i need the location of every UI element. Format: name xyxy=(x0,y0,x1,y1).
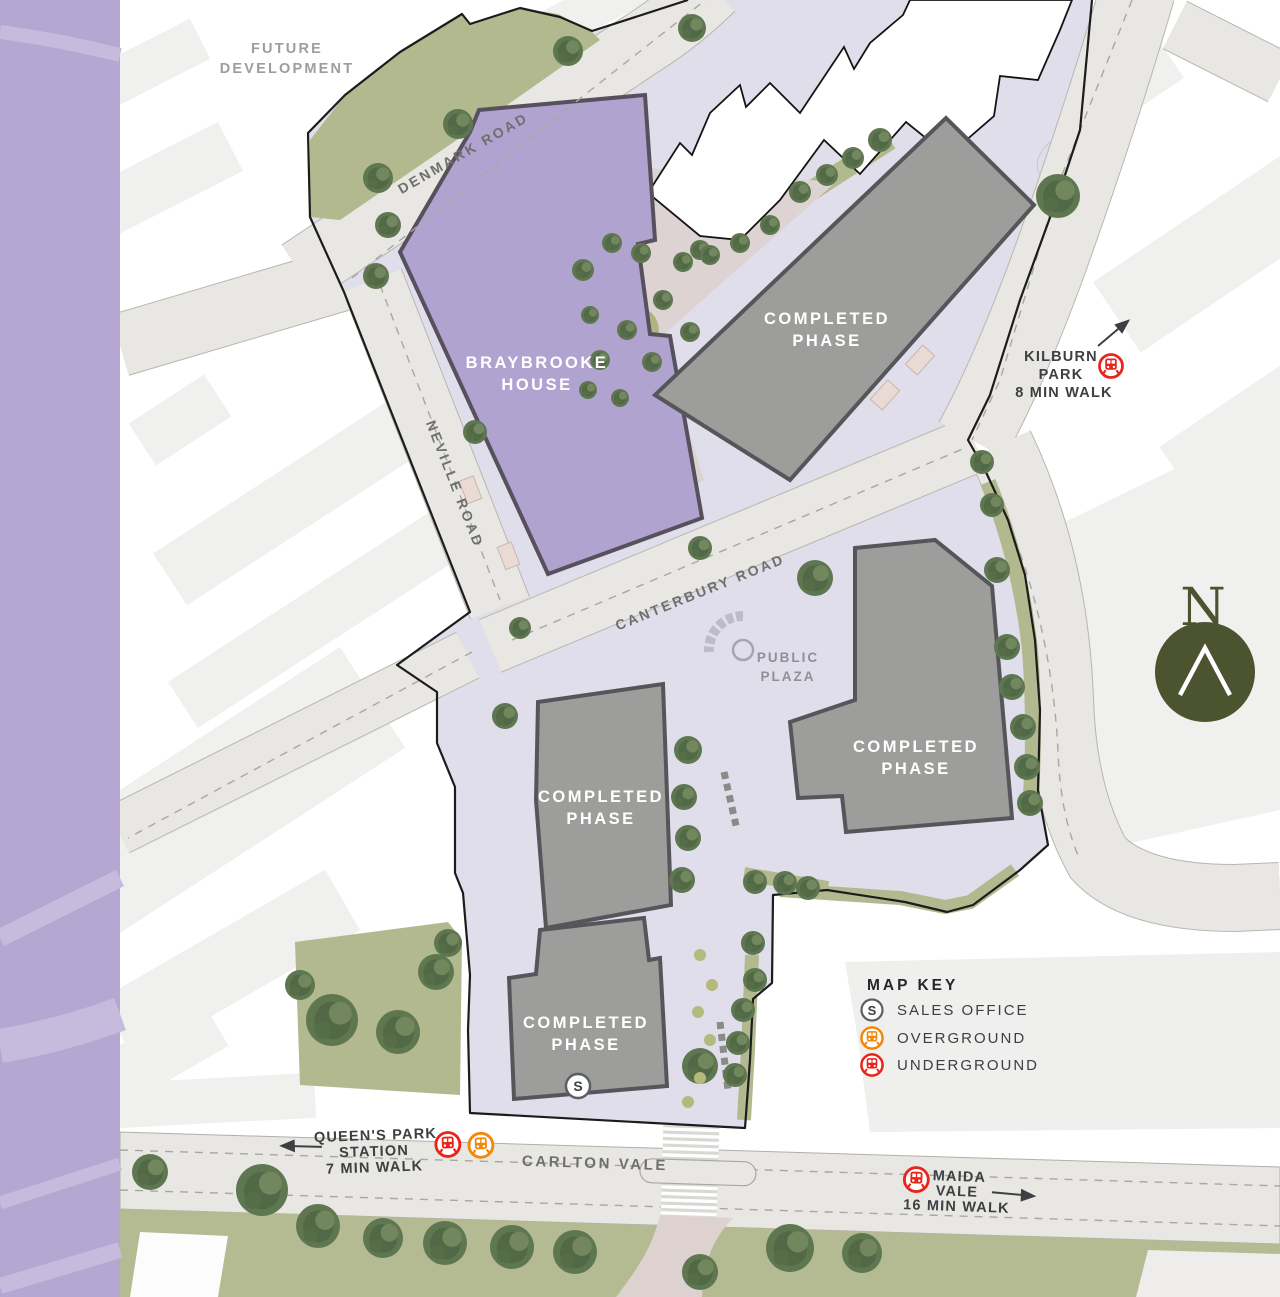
future-development-label: FUTURE xyxy=(251,41,323,57)
svg-text:DEVELOPMENT: DEVELOPMENT xyxy=(220,61,355,77)
svg-text:PHASE: PHASE xyxy=(881,760,950,778)
building-completed-3 xyxy=(536,684,671,928)
completed-phase-3-label: COMPLETED xyxy=(538,788,664,806)
completed-phase-2-label: COMPLETED xyxy=(853,738,979,756)
purple-band xyxy=(0,0,120,1297)
svg-text:PLAZA: PLAZA xyxy=(761,669,816,684)
overground-icon xyxy=(861,1027,882,1048)
svg-text:PARK: PARK xyxy=(1039,367,1084,383)
underground-icon xyxy=(435,1132,460,1157)
underground-icon xyxy=(861,1054,882,1075)
completed-phase-1-label: COMPLETED xyxy=(764,310,890,328)
svg-text:S: S xyxy=(573,1078,582,1094)
sales-office-marker: S xyxy=(566,1074,590,1098)
compass-circle xyxy=(1155,622,1255,722)
svg-text:MAP KEY: MAP KEY xyxy=(867,977,958,994)
svg-text:SALES OFFICE: SALES OFFICE xyxy=(897,1002,1029,1019)
svg-text:PHASE: PHASE xyxy=(551,1036,620,1054)
kilburn-arrow-icon xyxy=(1098,321,1128,346)
svg-text:PHASE: PHASE xyxy=(566,810,635,828)
underground-icon xyxy=(1100,355,1123,378)
completed-phase-4-label: COMPLETED xyxy=(523,1014,649,1032)
svg-text:PHASE: PHASE xyxy=(792,332,861,350)
svg-text:7 MIN WALK: 7 MIN WALK xyxy=(326,1158,424,1177)
svg-text:8 MIN WALK: 8 MIN WALK xyxy=(1015,385,1112,401)
svg-text:UNDERGROUND: UNDERGROUND xyxy=(897,1057,1039,1074)
site-plan: FUTURE DEVELOPMENT DENMARK ROAD NEVILLE … xyxy=(0,0,1280,1297)
braybrooke-label: BRAYBROOKE xyxy=(466,354,609,372)
site-plan-svg: FUTURE DEVELOPMENT DENMARK ROAD NEVILLE … xyxy=(0,0,1280,1297)
svg-text:KILBURN: KILBURN xyxy=(1024,349,1098,365)
public-plaza-label: PUBLIC xyxy=(757,650,819,665)
svg-text:S: S xyxy=(868,1003,877,1018)
svg-text:HOUSE: HOUSE xyxy=(501,376,572,394)
svg-text:OVERGROUND: OVERGROUND xyxy=(897,1030,1026,1047)
road-stub-bottom-right xyxy=(1136,1250,1280,1297)
underground-icon xyxy=(904,1167,929,1192)
overground-icon xyxy=(469,1133,494,1158)
